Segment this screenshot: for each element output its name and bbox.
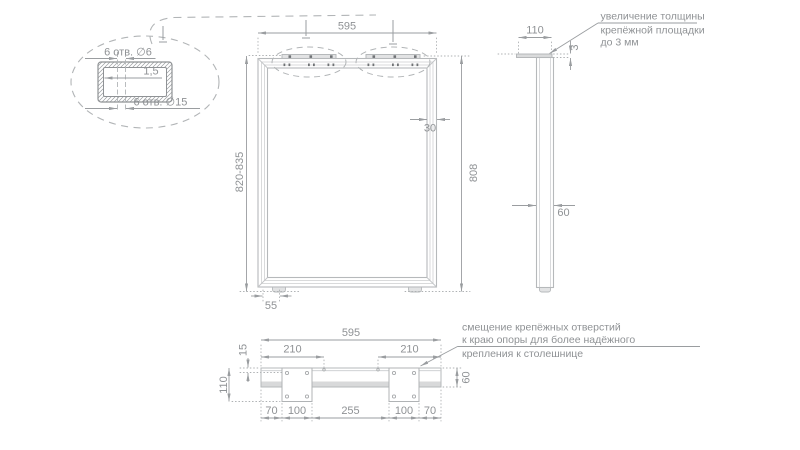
detail-view: 6 отв. ∅6 1,5 6 отв. ∅15	[71, 26, 219, 128]
side-foot	[540, 288, 551, 293]
plan-seg3-label: 255	[341, 405, 359, 417]
side-leg-depth-label: 60	[557, 207, 569, 219]
note-top-right: увеличение толщины крепёжной площадки до…	[601, 11, 705, 49]
balloon-tick-left	[302, 20, 310, 38]
front-height-range-label: 820-835	[234, 152, 246, 192]
frame-inner-contour	[268, 68, 428, 278]
detail-holes-bottom-label: 6 отв. ∅15	[134, 97, 188, 109]
plan-seg1-label: 70	[265, 405, 277, 417]
plan-hole-offset-label: 15	[238, 344, 250, 356]
detail-holes-top-label: 6 отв. ∅6	[104, 47, 152, 59]
side-view: 110 3 60	[498, 23, 697, 292]
detail-leader-tick	[159, 26, 167, 42]
front-view	[258, 47, 437, 292]
plan-seg2-label: 100	[288, 405, 306, 417]
note-leader-line	[421, 347, 458, 367]
note-line: увеличение толщины	[601, 11, 705, 23]
detail-wall-label: 1,5	[143, 66, 158, 78]
plan-right-span-label: 210	[400, 344, 418, 356]
front-profile-width-label: 30	[424, 123, 436, 135]
balloon-tick-right	[389, 20, 397, 44]
plan-left-span-label: 210	[283, 344, 301, 356]
plan-width-label: 595	[342, 327, 360, 339]
front-width-label: 595	[338, 21, 356, 33]
table-leg-drawing: 6 отв. ∅6 1,5 6 отв. ∅15	[0, 0, 800, 450]
side-plate-thickness-label: 3	[569, 44, 581, 50]
note-line: крепёжной площадки	[601, 25, 705, 37]
front-height-label: 808	[468, 164, 480, 182]
note-bottom-right: смещение крепёжных отверстий к краю опор…	[462, 322, 635, 361]
note-line: к краю опоры для более надёжного	[462, 334, 635, 346]
side-plate-width-label: 110	[526, 25, 544, 37]
note-line: до 3 мм	[601, 37, 639, 49]
note-line: смещение крепёжных отверстий	[462, 322, 621, 334]
note-line: крепления к столешнице	[462, 348, 583, 360]
plan-seg5-label: 70	[424, 405, 436, 417]
plan-bar-depth-label: 60	[461, 371, 473, 383]
technical-drawing-page: 6 отв. ∅6 1,5 6 отв. ∅15	[0, 0, 800, 450]
front-foot-offset-label: 55	[265, 300, 277, 312]
plan-seg4-label: 100	[395, 405, 413, 417]
plan-plate-depth-label: 110	[218, 376, 230, 394]
